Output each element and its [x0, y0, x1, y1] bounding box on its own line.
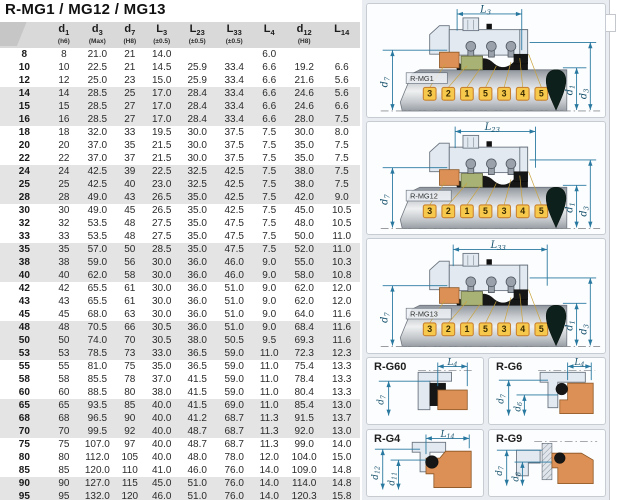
cell: 40	[49, 269, 79, 282]
cell: 28.5	[144, 243, 179, 256]
cell: 13.0	[323, 425, 360, 438]
cell: 50.5	[215, 334, 254, 347]
cell: 85.4	[285, 399, 324, 412]
cell: 59.0	[215, 386, 254, 399]
cell: 9.0	[253, 321, 284, 334]
cell: 15	[49, 100, 79, 113]
cell: 37.0	[144, 373, 179, 386]
cell: 53.5	[79, 230, 116, 243]
cell	[215, 48, 254, 61]
cell: 99.0	[285, 438, 324, 451]
cell: 10	[0, 61, 49, 74]
cell: 53	[0, 347, 49, 360]
cell: 96.5	[79, 412, 116, 425]
diagram-r-g4: L14 d12 d11 R-G4	[366, 429, 484, 497]
cell: 25.0	[79, 74, 116, 87]
cell: 28.5	[79, 113, 116, 126]
cell	[285, 48, 324, 61]
table-row: 505074.07030.538.050.59.569.311.6	[0, 334, 360, 347]
cell: 35.0	[285, 152, 324, 165]
cell: 30.0	[179, 126, 214, 139]
cell: 22.5	[79, 61, 116, 74]
datasheet-page: R-MG1 / MG12 / MG13 d1(h6)d3(Max)d7(H8)L…	[0, 0, 617, 500]
cell: 37.0	[79, 139, 116, 152]
cell: 64.0	[285, 308, 324, 321]
cell: 75.4	[285, 360, 324, 373]
cell: 36.0	[179, 269, 214, 282]
cell: 32	[49, 217, 79, 230]
cell: 58.0	[285, 269, 324, 282]
cell: 38.0	[285, 165, 324, 178]
cell: 30.0	[144, 282, 179, 295]
cell: 7.5	[253, 126, 284, 139]
svg-text:d7: d7	[495, 465, 506, 476]
cell: 120	[116, 490, 144, 500]
svg-text:L33: L33	[490, 240, 507, 252]
cell: 56	[116, 256, 144, 269]
cell: 21.5	[144, 139, 179, 152]
cell: 32.5	[179, 178, 214, 191]
cell: 80	[49, 451, 79, 464]
table-row: 7575107.09740.048.768.711.399.014.0	[0, 438, 360, 451]
cell: 6.6	[323, 61, 360, 74]
cell: 127.0	[79, 477, 116, 490]
table-row: 181832.03319.530.037.57.530.08.0	[0, 126, 360, 139]
cell: 45	[0, 308, 49, 321]
cell: 43	[49, 295, 79, 308]
cell: 72.3	[285, 347, 324, 360]
cell: 104.0	[285, 451, 324, 464]
cell: 11.3	[253, 412, 284, 425]
cell: 24	[49, 165, 79, 178]
cell: 68.4	[285, 321, 324, 334]
cell: 6.6	[323, 100, 360, 113]
cell: 40.0	[144, 412, 179, 425]
cell: 22	[0, 152, 49, 165]
cell: 92	[116, 425, 144, 438]
cell: 42.5	[215, 191, 254, 204]
cell: 70.5	[79, 321, 116, 334]
cell: 9.0	[253, 295, 284, 308]
cell: 40.0	[144, 451, 179, 464]
cell: 13.3	[323, 373, 360, 386]
cell: 37.5	[215, 126, 254, 139]
cell: 97	[116, 438, 144, 451]
cell: 7.5	[323, 165, 360, 178]
table-body: 8821.02114.06.0101022.52114.525.933.46.6…	[0, 48, 360, 500]
cell: 40	[0, 269, 49, 282]
table-header: d1(h6)d3(Max)d7(H8)L3(±0.5)L23(±0.5)L33(…	[0, 22, 360, 48]
table-row: 242442.53922.532.542.57.538.07.5	[0, 165, 360, 178]
cell: 11.3	[253, 425, 284, 438]
cell: 62.0	[285, 282, 324, 295]
cell: 33	[0, 230, 49, 243]
svg-text:L3: L3	[479, 5, 492, 17]
cell: 41.2	[179, 412, 214, 425]
cell: 9.5	[253, 334, 284, 347]
cell: 76.0	[215, 477, 254, 490]
cell: 58	[116, 269, 144, 282]
cell: 49.0	[79, 191, 116, 204]
column-header: d12(H8)	[285, 22, 324, 48]
cell: 12	[0, 74, 49, 87]
cell: 13.7	[323, 412, 360, 425]
cell: 21.0	[79, 48, 116, 61]
cell: 38	[0, 256, 49, 269]
cell: 7.5	[253, 217, 284, 230]
o-ring	[425, 456, 438, 469]
cell: 65.5	[79, 295, 116, 308]
cell: 120.3	[285, 490, 324, 500]
cell: 120.0	[79, 464, 116, 477]
cell: 12	[49, 74, 79, 87]
cell: 61	[116, 282, 144, 295]
seat-label: R-G60	[374, 361, 406, 373]
svg-text:L23: L23	[484, 122, 501, 134]
cell: 14.0	[323, 438, 360, 451]
cell: 105	[116, 451, 144, 464]
cell: 38.0	[179, 334, 214, 347]
cell: 8	[0, 48, 49, 61]
cell: 45.0	[285, 204, 324, 217]
cell: 30.5	[144, 321, 179, 334]
cell: 65.5	[79, 282, 116, 295]
table-row: 151528.52717.028.433.46.624.66.6	[0, 100, 360, 113]
cell: 85	[0, 464, 49, 477]
model-label: R-MG12	[410, 192, 438, 201]
cell: 28.4	[179, 113, 214, 126]
dimensions-table: d1(h6)d3(Max)d7(H8)L3(±0.5)L23(±0.5)L33(…	[0, 22, 360, 500]
seat-label: R-G4	[374, 433, 400, 445]
cell: 10.8	[323, 269, 360, 282]
page-frame-line	[609, 0, 610, 500]
cell: 11.6	[323, 308, 360, 321]
cell: 15.0	[144, 74, 179, 87]
cell: 30.0	[285, 126, 324, 139]
cell: 45.0	[144, 477, 179, 490]
cell: 7.5	[253, 139, 284, 152]
cell: 74.0	[79, 334, 116, 347]
table-row: 282849.04326.535.042.57.542.09.0	[0, 191, 360, 204]
cell: 35.0	[285, 139, 324, 152]
cell: 70	[49, 425, 79, 438]
cell: 58	[49, 373, 79, 386]
cell: 6.6	[253, 100, 284, 113]
cell: 7.5	[323, 152, 360, 165]
cell: 68.7	[215, 438, 254, 451]
table-row: 8585120.011041.046.076.014.0109.014.8	[0, 464, 360, 477]
cell: 7.5	[323, 113, 360, 126]
cell: 95	[49, 490, 79, 500]
cell: 66	[116, 321, 144, 334]
cell: 50	[0, 334, 49, 347]
cell: 42	[0, 282, 49, 295]
cell: 7.5	[253, 243, 284, 256]
cell: 57.0	[79, 243, 116, 256]
cell: 14.0	[144, 48, 179, 61]
table-row: 161628.52717.028.433.46.628.07.5	[0, 113, 360, 126]
table-row: 424265.56130.036.051.09.062.012.0	[0, 282, 360, 295]
column-header: L4	[253, 22, 284, 48]
cell: 24.6	[285, 100, 324, 113]
cell: 30	[49, 204, 79, 217]
cell: 14	[49, 87, 79, 100]
cell: 70	[0, 425, 49, 438]
cell: 9.0	[253, 282, 284, 295]
cell: 11.0	[323, 243, 360, 256]
cell: 75	[0, 438, 49, 451]
svg-text:d12: d12	[371, 466, 382, 480]
cell: 42.5	[79, 165, 116, 178]
cell: 99.5	[79, 425, 116, 438]
table-row: 121225.02315.025.933.46.621.65.6	[0, 74, 360, 87]
diagram-section: L3 R-MG1 L23 R-MG12	[362, 0, 617, 500]
diagram-r-mg12: L23 R-MG12	[366, 121, 606, 235]
cell: 12.0	[253, 451, 284, 464]
cell: 43	[0, 295, 49, 308]
cell: 28.5	[79, 87, 116, 100]
cell: 65	[49, 399, 79, 412]
cell: 12.0	[323, 295, 360, 308]
cell: 10.5	[323, 217, 360, 230]
cell: 6.6	[253, 113, 284, 126]
cell: 36.0	[179, 308, 214, 321]
cell: 21	[116, 61, 144, 74]
svg-text:L4: L4	[447, 358, 458, 369]
cell: 35.0	[179, 204, 214, 217]
table-row: 101022.52114.525.933.46.619.26.6	[0, 61, 360, 74]
cell: 51.0	[215, 321, 254, 334]
cell: 48.0	[285, 217, 324, 230]
cell: 18	[49, 126, 79, 139]
cell: 28.5	[79, 100, 116, 113]
cell: 114.0	[285, 477, 324, 490]
cell: 33.4	[215, 74, 254, 87]
cell: 33.4	[215, 100, 254, 113]
column-header: L14	[323, 22, 360, 48]
table-row: 222237.03721.530.037.57.535.07.5	[0, 152, 360, 165]
o-ring	[554, 453, 565, 464]
column-header: d3(Max)	[79, 22, 116, 48]
cell: 115	[116, 477, 144, 490]
cell: 20	[49, 139, 79, 152]
cell: 26.5	[144, 191, 179, 204]
cell: 81.0	[79, 360, 116, 373]
cell: 52.0	[285, 243, 324, 256]
cell: 110	[116, 464, 144, 477]
cell: 38.0	[285, 178, 324, 191]
cell: 58	[0, 373, 49, 386]
cell: 62.0	[79, 269, 116, 282]
table-row: 606088.58038.041.559.011.080.413.3	[0, 386, 360, 399]
cell: 95	[0, 490, 49, 500]
cell: 40	[116, 178, 144, 191]
table-row: 434365.56130.036.051.09.062.012.0	[0, 295, 360, 308]
cell: 75	[116, 360, 144, 373]
cell: 6.6	[253, 61, 284, 74]
cell: 14.0	[253, 464, 284, 477]
cell: 35.0	[179, 230, 214, 243]
cell: 68.0	[79, 308, 116, 321]
cell: 32.5	[179, 165, 214, 178]
cell: 30.0	[144, 308, 179, 321]
cell: 62.0	[285, 295, 324, 308]
cell: 25	[116, 87, 144, 100]
cell: 107.0	[79, 438, 116, 451]
cell: 42.5	[215, 178, 254, 191]
cell: 11.6	[323, 321, 360, 334]
cell: 28	[49, 191, 79, 204]
cell: 61	[116, 295, 144, 308]
cell: 78	[116, 373, 144, 386]
housing	[517, 450, 541, 476]
cell: 19.5	[144, 126, 179, 139]
cell: 14	[0, 87, 49, 100]
table-row: 585885.57837.041.559.011.078.413.3	[0, 373, 360, 386]
cell: 69.3	[285, 334, 324, 347]
cell: 53	[49, 347, 79, 360]
cell: 51.0	[215, 308, 254, 321]
cell: 45	[49, 308, 79, 321]
cell: 25	[0, 178, 49, 191]
column-header: L33(±0.5)	[215, 22, 254, 48]
model-label: R-MG13	[410, 310, 438, 319]
cell: 32.0	[79, 126, 116, 139]
cell: 33.4	[215, 87, 254, 100]
cell: 25.9	[179, 61, 214, 74]
cell: 48.7	[179, 438, 214, 451]
cell: 14.0	[253, 490, 284, 500]
cell: 26.5	[144, 204, 179, 217]
table-row: 484870.56630.536.051.09.068.411.6	[0, 321, 360, 334]
cell: 30.0	[179, 152, 214, 165]
cell: 112.0	[79, 451, 116, 464]
cell: 35	[49, 243, 79, 256]
cell: 85	[49, 464, 79, 477]
cell: 43	[116, 191, 144, 204]
cell: 30	[0, 204, 49, 217]
cell: 33.4	[215, 61, 254, 74]
cell: 93.5	[79, 399, 116, 412]
cell: 32	[0, 217, 49, 230]
cell: 78.4	[285, 373, 324, 386]
cell: 22	[49, 152, 79, 165]
table-row: 202037.03521.530.037.57.535.07.5	[0, 139, 360, 152]
cell: 27	[116, 113, 144, 126]
table-row: 252542.54023.032.542.57.538.07.5	[0, 178, 360, 191]
seat-variant-grid: L4 d7 R-G60	[366, 357, 606, 497]
cell: 16	[0, 113, 49, 126]
cell: 46.0	[215, 256, 254, 269]
cell: 46.0	[215, 269, 254, 282]
cell: 37.5	[215, 152, 254, 165]
diagram-r-g9: d7 d8 R-G9	[488, 429, 606, 497]
cell	[323, 48, 360, 61]
cell: 63	[116, 308, 144, 321]
cell: 76.0	[215, 490, 254, 500]
cell: 28.4	[179, 100, 214, 113]
cell: 45	[116, 204, 144, 217]
cell: 11.0	[253, 347, 284, 360]
column-header	[0, 22, 49, 48]
cell: 19.2	[285, 61, 324, 74]
cell: 53.5	[79, 217, 116, 230]
cell: 6.0	[253, 48, 284, 61]
cell: 9.0	[253, 269, 284, 282]
table-row: 333353.54827.535.047.57.550.011.0	[0, 230, 360, 243]
page-title: R-MG1 / MG12 / MG13	[5, 1, 166, 18]
cell: 80	[116, 386, 144, 399]
table-row: 656593.58540.041.569.011.085.413.0	[0, 399, 360, 412]
cell: 14.8	[323, 464, 360, 477]
cell: 40.0	[144, 399, 179, 412]
cell: 36.0	[179, 321, 214, 334]
cell: 51.0	[215, 282, 254, 295]
cell: 7.5	[253, 191, 284, 204]
cell: 24	[0, 165, 49, 178]
cell: 18	[0, 126, 49, 139]
svg-text:d7: d7	[377, 394, 388, 405]
cell: 14.5	[144, 61, 179, 74]
table-row: 707099.59240.048.768.711.392.013.0	[0, 425, 360, 438]
cell: 78.5	[79, 347, 116, 360]
cell: 22.5	[144, 165, 179, 178]
cell: 73	[116, 347, 144, 360]
cell: 25	[49, 178, 79, 191]
cell: 9.0	[253, 256, 284, 269]
cell: 6.6	[253, 74, 284, 87]
cell: 33	[49, 230, 79, 243]
cell: 42.5	[79, 178, 116, 191]
cell: 10	[49, 61, 79, 74]
cell: 42.0	[285, 191, 324, 204]
cell: 35	[116, 139, 144, 152]
cell: 30.0	[144, 295, 179, 308]
cell: 36.0	[179, 282, 214, 295]
svg-text:d11: d11	[388, 472, 399, 486]
cell: 46.0	[179, 464, 214, 477]
column-header: L3(±0.5)	[144, 22, 179, 48]
table-row: 323253.54827.535.047.57.548.010.5	[0, 217, 360, 230]
cell: 50	[49, 334, 79, 347]
cell: 60	[0, 386, 49, 399]
column-header: L23(±0.5)	[179, 22, 214, 48]
cell: 12.0	[323, 282, 360, 295]
cell: 7.5	[253, 152, 284, 165]
cell: 70	[116, 334, 144, 347]
cell: 25.9	[179, 74, 214, 87]
cell: 37	[116, 152, 144, 165]
cell: 48	[0, 321, 49, 334]
cell: 6.6	[253, 87, 284, 100]
cell: 39	[116, 165, 144, 178]
cell: 23	[116, 74, 144, 87]
column-header: d1(h6)	[49, 22, 79, 48]
model-label: R-MG1	[410, 74, 434, 83]
cell: 47.5	[215, 217, 254, 230]
cell: 35.0	[179, 243, 214, 256]
cell: 90	[49, 477, 79, 490]
svg-text:L4: L4	[573, 358, 584, 369]
cell: 36.0	[179, 256, 214, 269]
cell: 27.5	[144, 217, 179, 230]
diagram-r-g6: L4 d7 d6 R-G6	[488, 357, 606, 425]
cell: 7.5	[253, 178, 284, 191]
cell: 11.0	[253, 386, 284, 399]
cell: 50.0	[285, 230, 324, 243]
cell: 42.5	[215, 165, 254, 178]
cell: 69.0	[215, 399, 254, 412]
